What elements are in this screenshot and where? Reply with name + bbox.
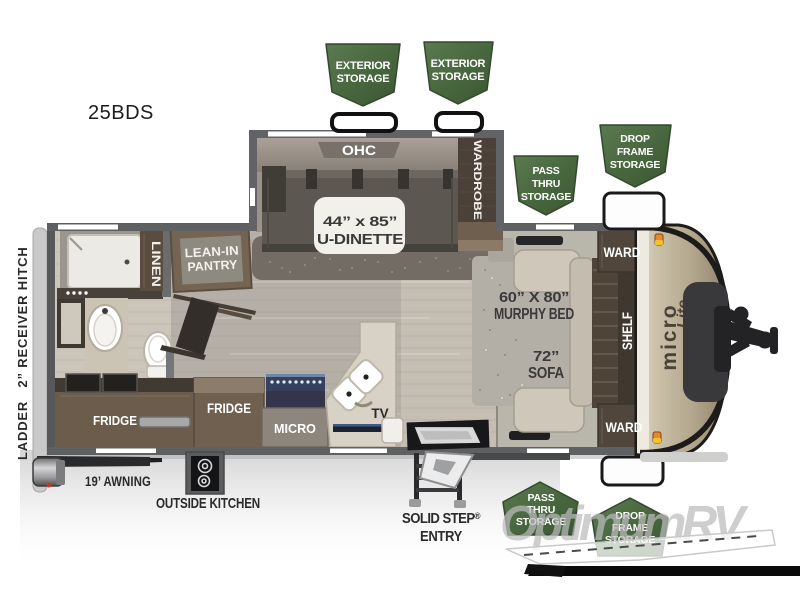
svg-text:SOFA: SOFA xyxy=(528,365,564,382)
svg-text:LINEN: LINEN xyxy=(149,241,161,287)
svg-text:U-DINETTE: U-DINETTE xyxy=(317,232,404,248)
svg-text:MICRO: MICRO xyxy=(274,421,316,436)
svg-text:WARDROBE: WARDROBE xyxy=(471,140,483,220)
svg-text:EXTERIOR: EXTERIOR xyxy=(336,60,391,72)
svg-text:PASS: PASS xyxy=(532,165,559,177)
svg-text:STORAGE: STORAGE xyxy=(432,71,485,83)
svg-text:SOLID STEP®: SOLID STEP® xyxy=(402,511,481,527)
svg-text:WARD: WARD xyxy=(604,245,641,260)
svg-text:FRIDGE: FRIDGE xyxy=(207,401,251,416)
svg-text:44” x 85”: 44” x 85” xyxy=(323,213,397,229)
svg-text:SHELF: SHELF xyxy=(620,312,635,350)
svg-text:MURPHY BED: MURPHY BED xyxy=(494,306,574,323)
svg-text:25BDS: 25BDS xyxy=(88,102,154,124)
svg-text:60” X 80”: 60” X 80” xyxy=(499,289,569,306)
svg-text:STORAGE: STORAGE xyxy=(521,191,572,203)
svg-text:DROP: DROP xyxy=(620,133,650,145)
svg-text:ENTRY: ENTRY xyxy=(420,529,463,545)
svg-text:FRIDGE: FRIDGE xyxy=(93,413,137,428)
svg-text:WARD: WARD xyxy=(606,420,643,435)
svg-text:LADDER 2” RECEIVER HITCH: LADDER 2” RECEIVER HITCH xyxy=(15,247,30,460)
svg-text:72”: 72” xyxy=(533,348,559,365)
svg-text:OHC: OHC xyxy=(342,143,376,158)
svg-text:PANTRY: PANTRY xyxy=(187,258,238,275)
svg-text:THRU: THRU xyxy=(532,178,560,190)
svg-text:EXTERIOR: EXTERIOR xyxy=(431,58,486,70)
svg-text:STORAGE: STORAGE xyxy=(610,159,661,171)
svg-text:19’ AWNING: 19’ AWNING xyxy=(85,474,151,489)
svg-text:FRAME: FRAME xyxy=(617,146,654,158)
svg-text:STORAGE: STORAGE xyxy=(337,73,390,85)
svg-text:OUTSIDE KITCHEN: OUTSIDE KITCHEN xyxy=(156,495,260,512)
